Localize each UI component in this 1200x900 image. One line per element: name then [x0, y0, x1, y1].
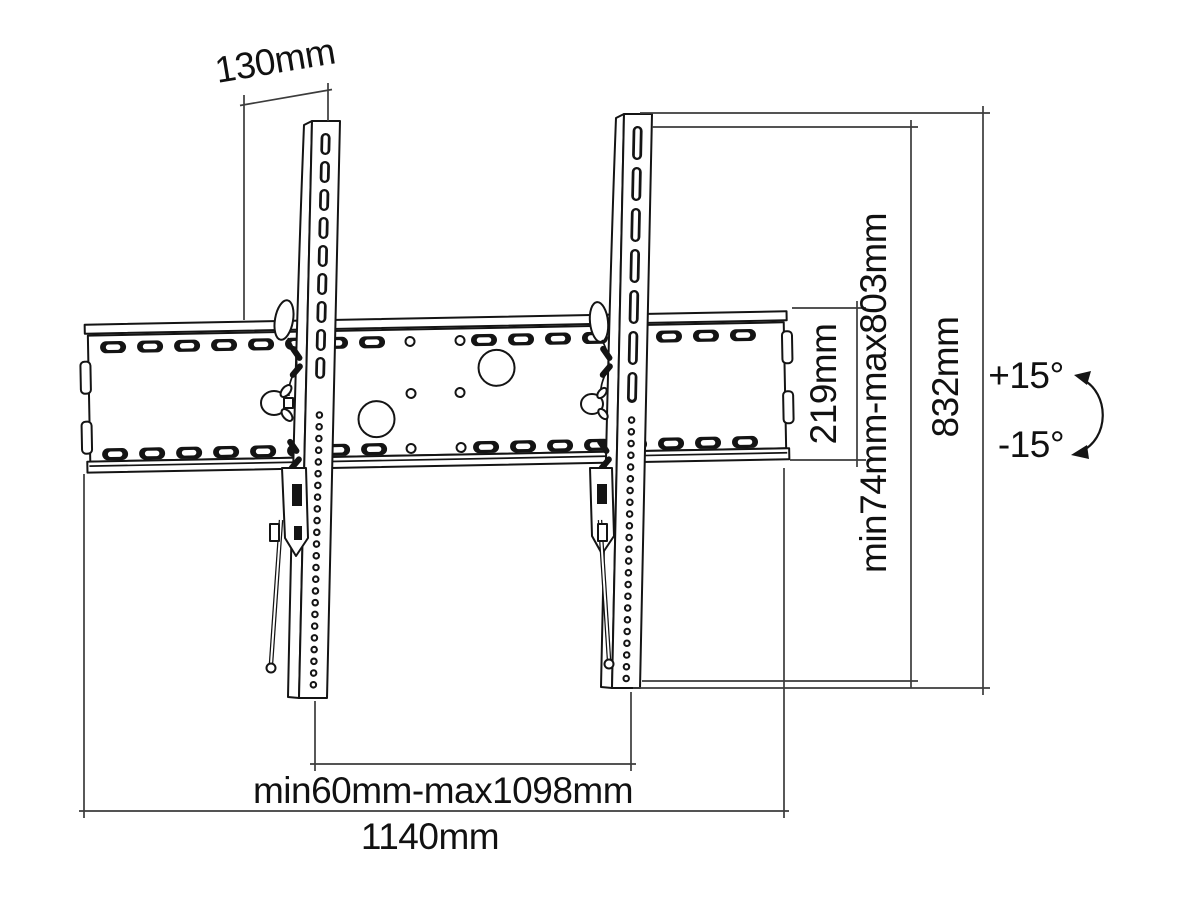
tilt-angle-annotation: +15° -15° [988, 355, 1103, 465]
plate-right-tab [782, 331, 793, 363]
left-pull-rod [267, 520, 282, 673]
diagram-canvas: 130mm 219mm min74mm-max803mm 832mm min60… [0, 0, 1200, 900]
left-latch [282, 468, 308, 556]
plate-large-hole [478, 349, 515, 386]
bracket-spacing-label: min60mm-max1098mm [253, 770, 633, 811]
plate-large-hole [358, 401, 395, 438]
tilt-down-label: -15° [998, 424, 1064, 465]
plate-left-tab [82, 422, 93, 454]
dimension-bracket-spacing: min60mm-max1098mm [253, 692, 636, 811]
plate-left-tab [80, 362, 91, 394]
wall-plate [80, 311, 795, 473]
left-tv-bracket [288, 121, 340, 698]
plate-height-label: 219mm [803, 324, 844, 445]
tilt-up-label: +15° [988, 355, 1064, 396]
plate-width-label: 1140mm [361, 816, 499, 857]
right-tv-bracket [601, 114, 652, 688]
depth-label: 130mm [212, 30, 338, 90]
bracket-height-label: 832mm [925, 317, 966, 438]
mount-dimension-diagram: 130mm 219mm min74mm-max803mm 832mm min60… [0, 0, 1200, 900]
plate-right-tab [783, 391, 794, 423]
vertical-range-label: min74mm-max803mm [853, 213, 894, 573]
tilt-arrow-icon [1071, 371, 1103, 459]
